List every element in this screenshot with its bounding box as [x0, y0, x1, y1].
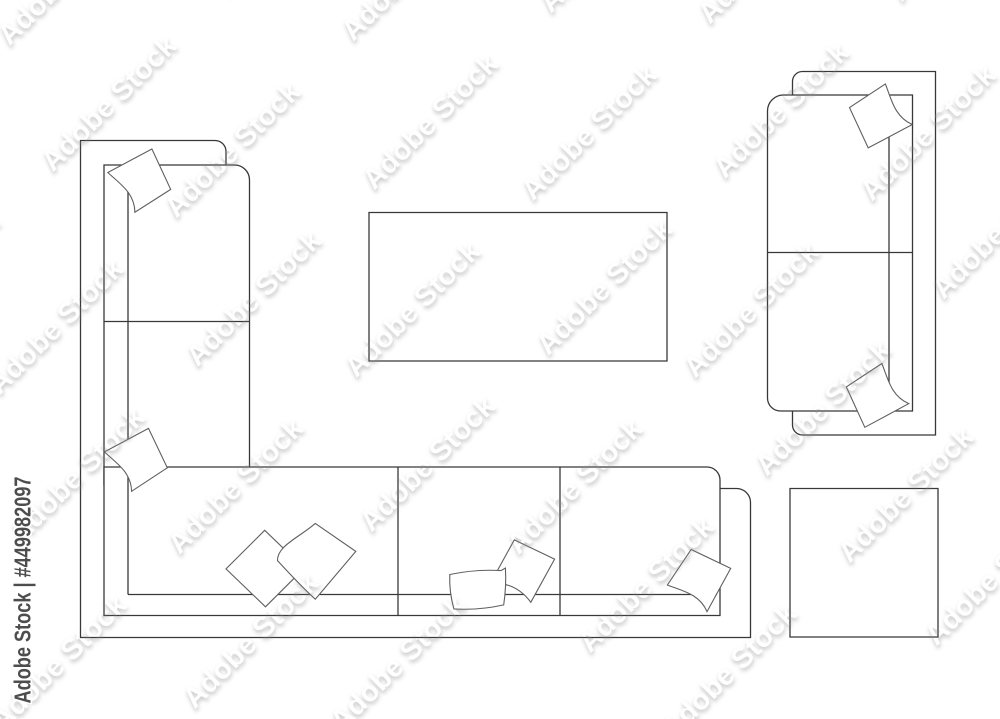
svg-text:Adobe Stock | #449982097: Adobe Stock | #449982097: [10, 477, 36, 704]
